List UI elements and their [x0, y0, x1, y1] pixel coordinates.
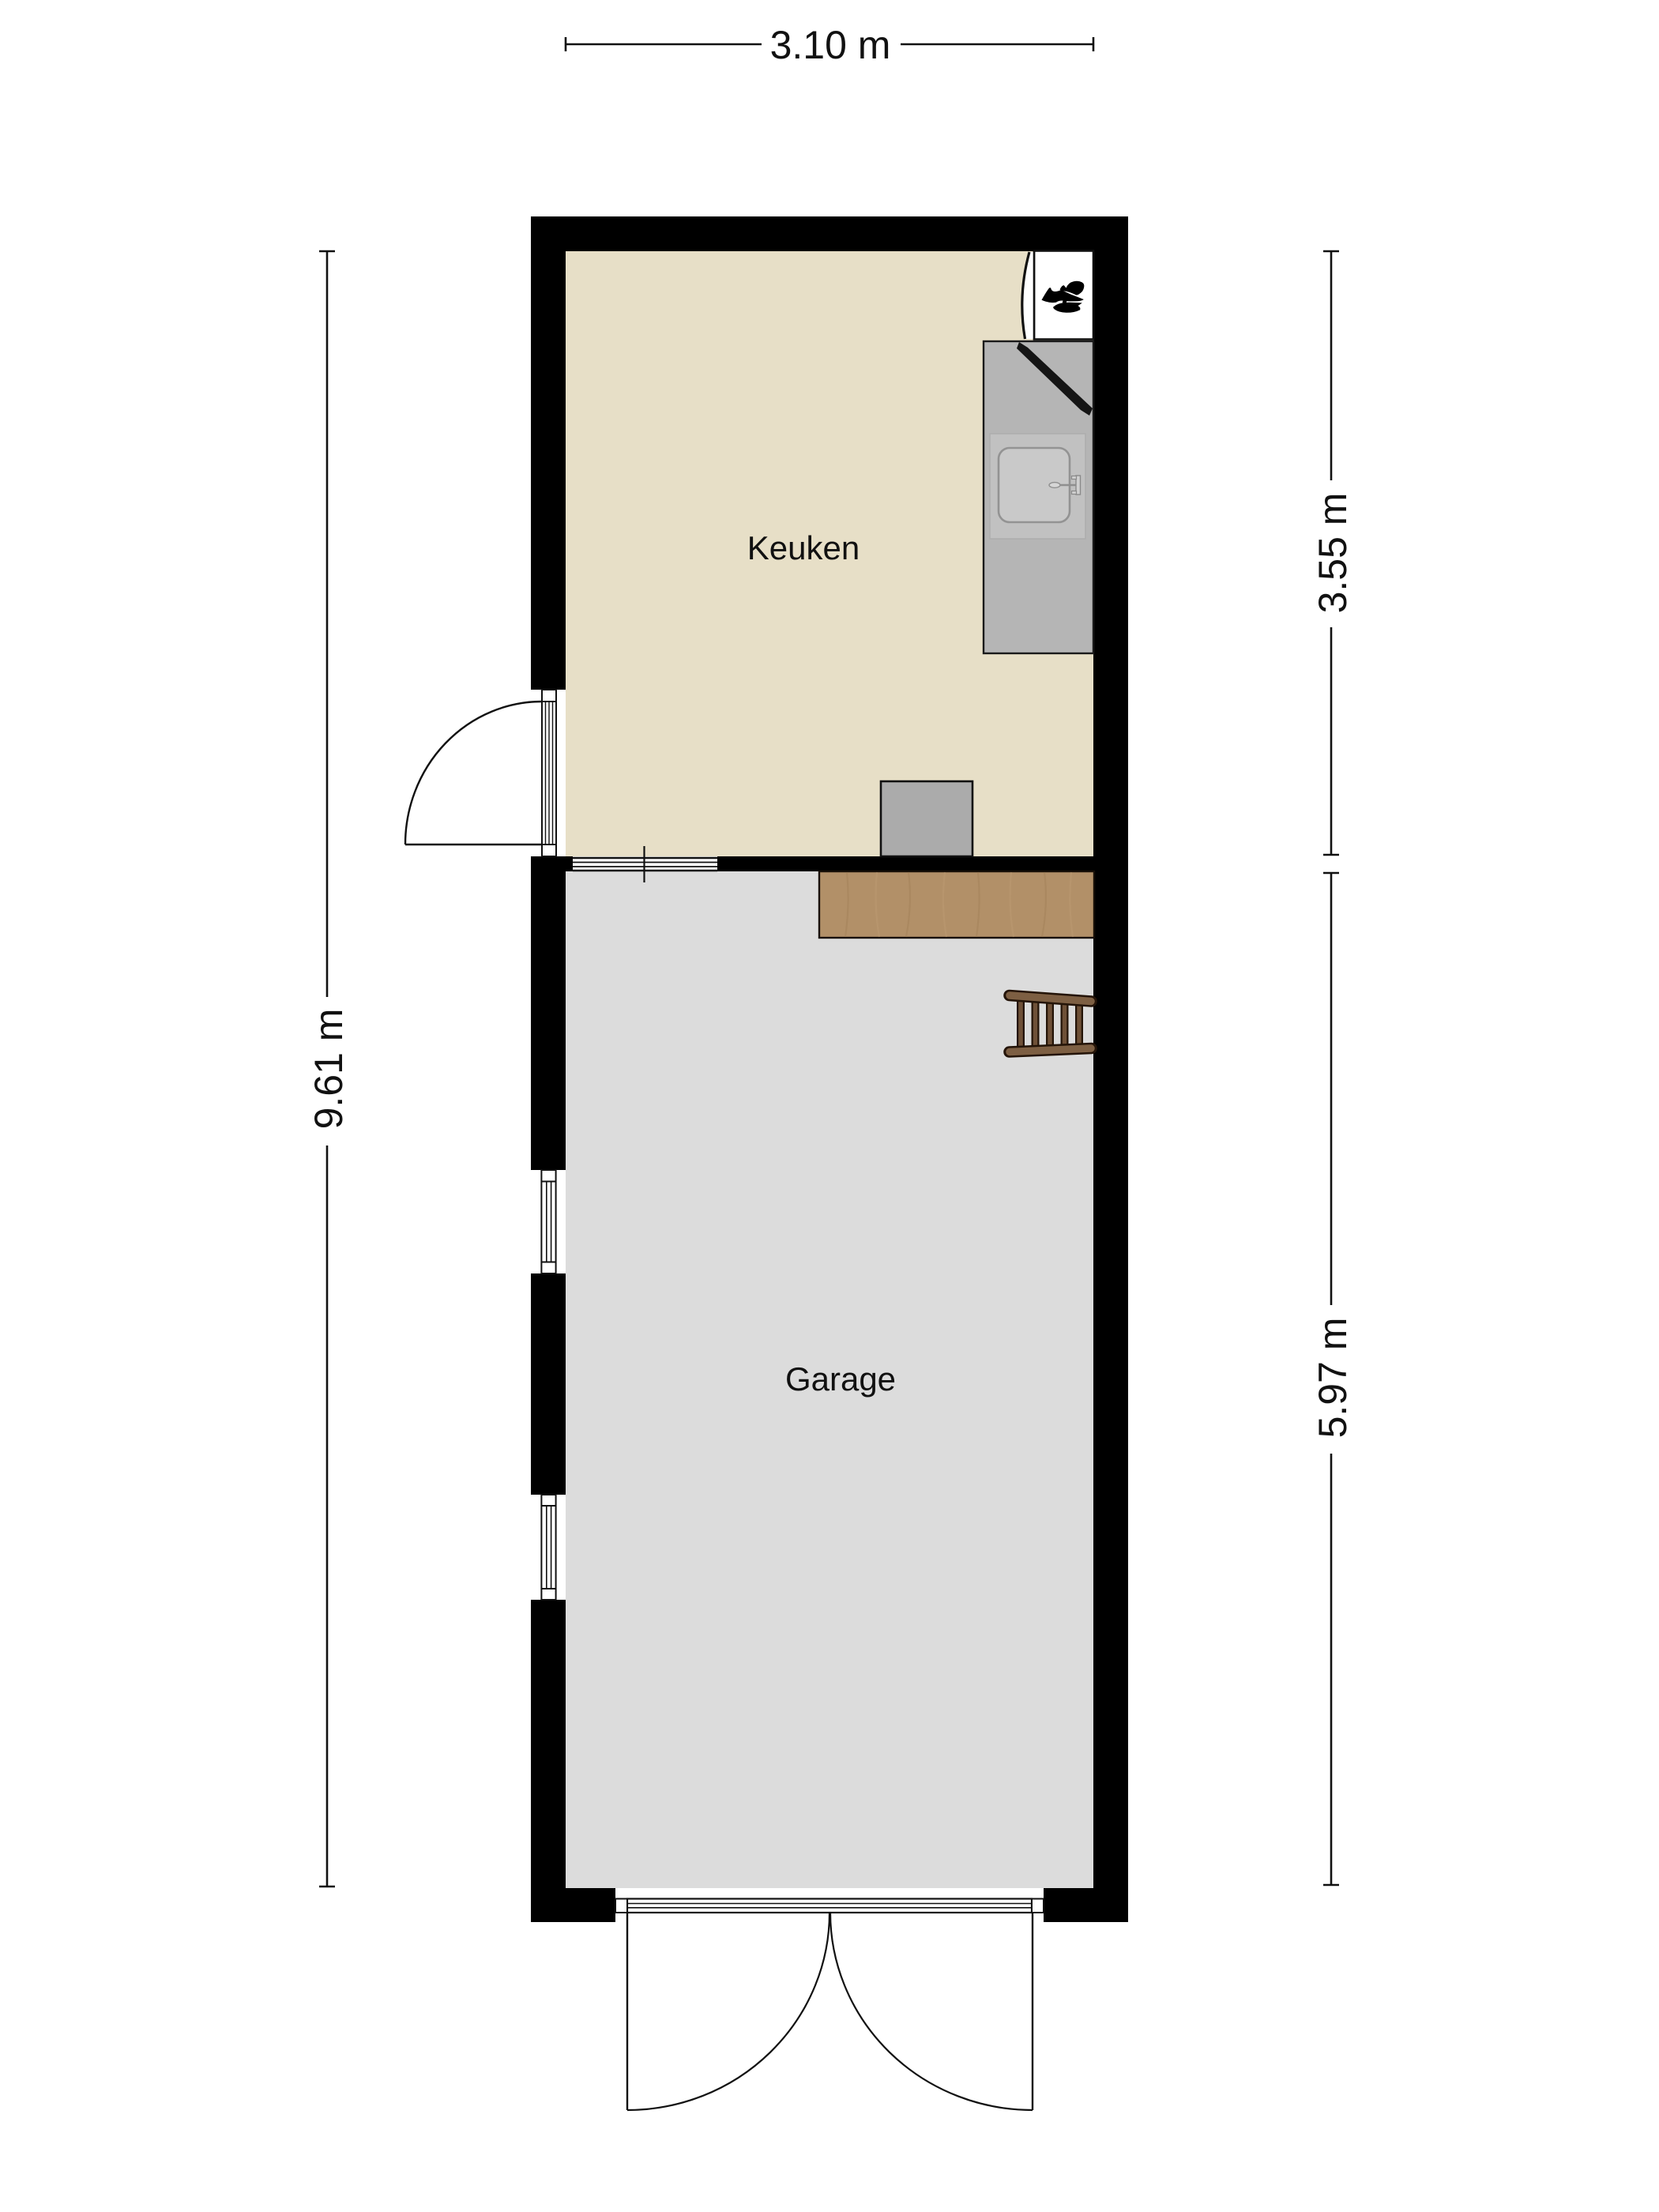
svg-text:5.97 m: 5.97 m: [1311, 1318, 1355, 1439]
svg-text:Keuken: Keuken: [747, 529, 860, 566]
svg-text:Garage: Garage: [785, 1360, 896, 1398]
svg-text:9.61 m: 9.61 m: [307, 1009, 351, 1130]
svg-text:3.10 m: 3.10 m: [770, 23, 891, 67]
svg-text:3.55 m: 3.55 m: [1311, 493, 1355, 614]
